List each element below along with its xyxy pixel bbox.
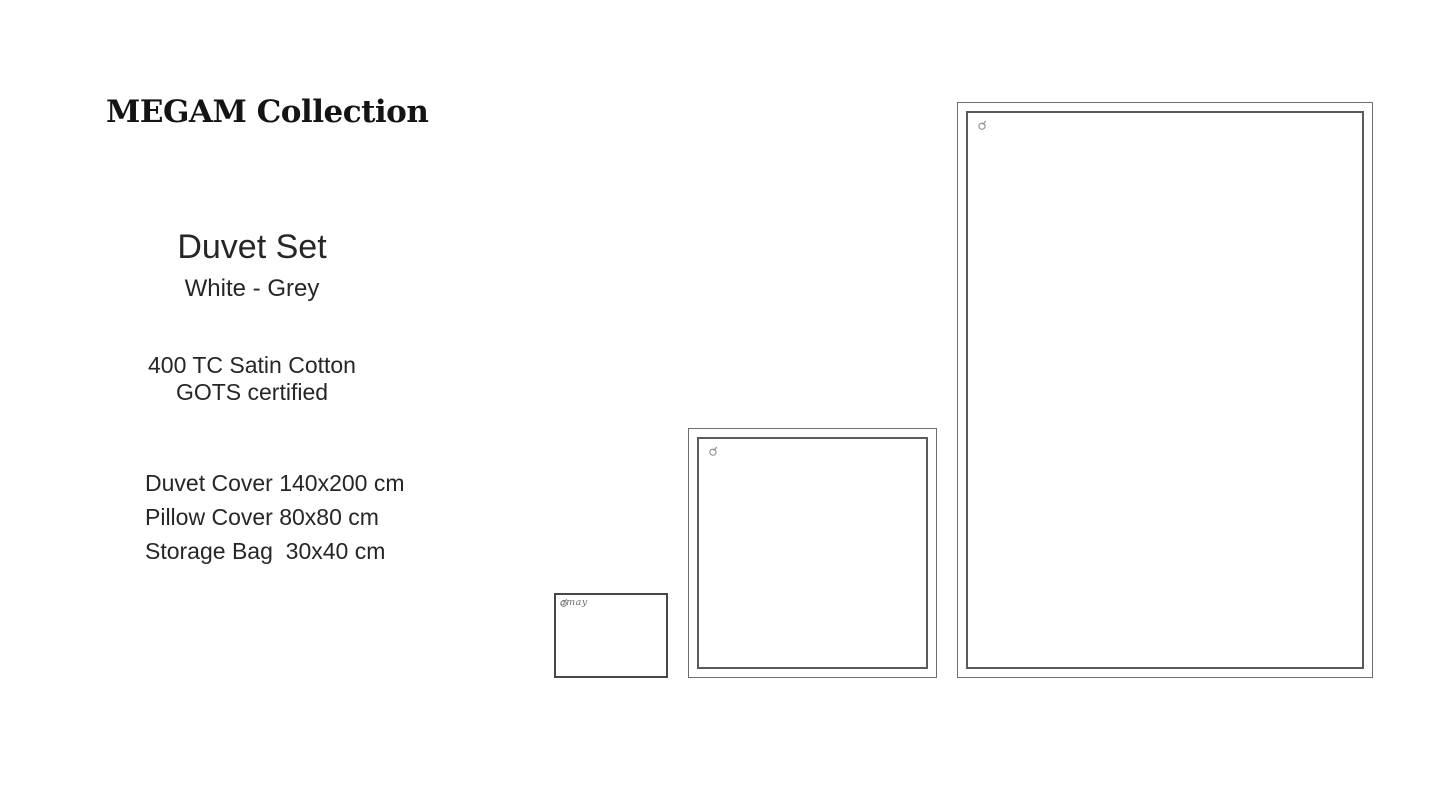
spec-sheet-page: MEGAM Collection Duvet Set White - Grey … bbox=[0, 0, 1445, 794]
duvet-cover-outline bbox=[957, 102, 1373, 678]
material-line-2: GOTS certified bbox=[102, 379, 402, 406]
product-colorway: White - Grey bbox=[102, 276, 402, 302]
material-info: 400 TC Satin Cotton GOTS certified bbox=[102, 352, 402, 406]
material-line-1: 400 TC Satin Cotton bbox=[102, 352, 402, 379]
product-name: Duvet Set bbox=[102, 229, 402, 266]
collection-title: MEGAM Collection bbox=[106, 95, 428, 129]
brand-mark-icon bbox=[978, 120, 987, 131]
size-list: Duvet Cover 140x200 cm Pillow Cover 80x8… bbox=[145, 466, 405, 568]
size-item-duvet-cover: Duvet Cover 140x200 cm bbox=[145, 466, 405, 500]
size-item-pillow-cover: Pillow Cover 80x80 cm bbox=[145, 500, 405, 534]
storage-bag-outline: amay bbox=[554, 593, 668, 678]
size-item-storage-bag: Storage Bag 30x40 cm bbox=[145, 534, 405, 568]
duvet-cover-inner-outline bbox=[966, 111, 1364, 669]
pillow-cover-outline bbox=[688, 428, 937, 678]
brand-mark-icon bbox=[709, 446, 718, 457]
storage-bag-brand-logo: amay bbox=[560, 598, 588, 608]
brand-mark-icon bbox=[560, 598, 568, 608]
pillow-cover-inner-outline bbox=[697, 437, 928, 669]
